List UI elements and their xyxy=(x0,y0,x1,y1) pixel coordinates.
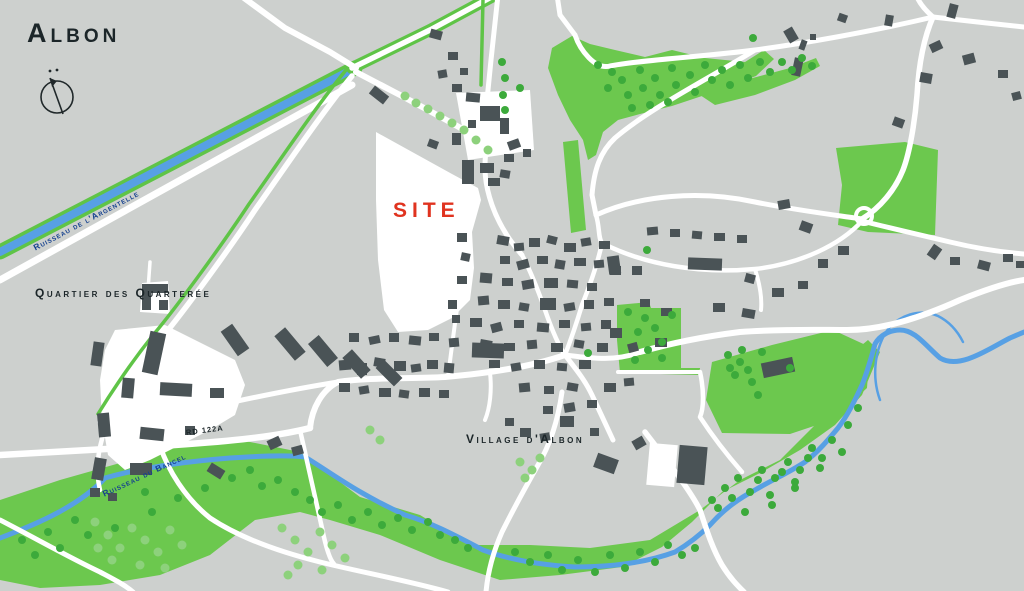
building xyxy=(514,320,524,328)
building xyxy=(339,383,350,392)
tree-icon xyxy=(291,536,300,545)
tree-icon xyxy=(756,58,764,66)
tree-icon xyxy=(754,476,762,484)
tree-icon xyxy=(644,346,652,354)
building xyxy=(452,315,460,323)
tree-icon xyxy=(796,466,804,474)
tree-icon xyxy=(646,101,654,109)
building xyxy=(521,279,534,290)
building xyxy=(566,382,578,392)
building xyxy=(604,383,616,392)
tree-icon xyxy=(141,488,149,496)
tree-icon xyxy=(658,338,666,346)
building xyxy=(543,406,553,414)
building xyxy=(573,339,584,349)
building xyxy=(581,323,592,332)
building xyxy=(670,229,680,237)
tree-icon xyxy=(624,308,632,316)
building xyxy=(610,328,622,338)
tree-icon xyxy=(521,474,530,483)
building xyxy=(551,343,563,352)
building xyxy=(139,427,164,441)
tree-icon xyxy=(718,66,726,74)
building xyxy=(520,428,531,437)
tree-icon xyxy=(499,91,507,99)
tree-icon xyxy=(634,328,642,336)
tree-icon xyxy=(201,484,209,492)
tree-icon xyxy=(651,324,659,332)
tree-icon xyxy=(394,514,402,522)
tree-icon xyxy=(526,558,534,566)
building xyxy=(540,298,556,310)
building xyxy=(590,428,599,436)
building xyxy=(379,388,391,397)
tree-icon xyxy=(584,349,592,357)
tree-icon xyxy=(408,526,416,534)
building xyxy=(410,363,421,372)
building xyxy=(419,388,430,397)
building xyxy=(427,139,439,150)
tree-icon xyxy=(574,556,582,564)
tree-icon xyxy=(651,558,659,566)
tree-icon xyxy=(791,484,799,492)
tree-icon xyxy=(44,528,52,536)
building xyxy=(529,238,540,247)
building xyxy=(537,322,550,332)
tree-icon xyxy=(591,568,599,576)
building xyxy=(130,463,152,475)
tree-icon xyxy=(424,105,433,114)
tree-icon xyxy=(714,504,722,512)
building xyxy=(632,266,642,275)
tree-icon xyxy=(274,476,282,484)
tree-icon xyxy=(178,541,187,550)
tree-icon xyxy=(498,58,506,66)
building xyxy=(457,276,467,284)
tree-icon xyxy=(636,66,644,74)
building xyxy=(358,385,369,395)
tree-icon xyxy=(91,518,100,527)
tree-icon xyxy=(166,526,175,535)
tree-icon xyxy=(754,391,762,399)
tree-icon xyxy=(161,564,170,573)
tree-icon xyxy=(511,548,519,556)
tree-icon xyxy=(749,34,757,42)
tree-icon xyxy=(641,314,649,322)
building xyxy=(498,300,510,309)
tree-icon xyxy=(424,518,432,526)
building xyxy=(624,378,635,387)
tree-icon xyxy=(536,454,545,463)
tree-icon xyxy=(816,464,824,472)
building xyxy=(544,386,554,394)
tree-icon xyxy=(341,554,350,563)
tree-icon xyxy=(108,556,117,565)
tree-icon xyxy=(136,561,145,570)
building xyxy=(741,308,755,319)
tree-icon xyxy=(778,468,786,476)
argentelle-river xyxy=(0,68,355,252)
tree-icon xyxy=(484,146,493,155)
tree-icon xyxy=(104,531,113,540)
tree-icon xyxy=(691,88,699,96)
tree-icon xyxy=(306,496,314,504)
tree-icon xyxy=(366,426,375,435)
building xyxy=(437,69,447,78)
building xyxy=(448,52,458,60)
building xyxy=(713,303,725,312)
tree-icon xyxy=(116,544,125,553)
building xyxy=(544,278,558,288)
tree-icon xyxy=(784,458,792,466)
tree-icon xyxy=(228,474,236,482)
tree-icon xyxy=(672,81,680,89)
building xyxy=(470,318,482,327)
tree-icon xyxy=(838,448,846,456)
building xyxy=(580,237,591,247)
tree-icon xyxy=(31,551,39,559)
building xyxy=(601,320,611,329)
tree-icon xyxy=(460,126,469,135)
building xyxy=(462,160,474,184)
building xyxy=(599,241,610,249)
tree-icon xyxy=(651,74,659,82)
building xyxy=(349,333,359,342)
tree-icon xyxy=(291,488,299,496)
building xyxy=(798,281,808,289)
building xyxy=(737,235,747,243)
tree-icon xyxy=(318,566,327,575)
tree-icon xyxy=(721,484,729,492)
tree-icon xyxy=(284,571,293,580)
building xyxy=(714,233,725,241)
tree-icon xyxy=(668,311,676,319)
building xyxy=(439,390,449,398)
tree-icon xyxy=(378,521,386,529)
tree-icon xyxy=(808,444,816,452)
building xyxy=(108,493,117,501)
map-canvas xyxy=(0,0,1024,591)
building xyxy=(998,70,1008,78)
tree-icon xyxy=(111,524,119,532)
building xyxy=(489,360,500,368)
tree-icon xyxy=(854,404,862,412)
tree-icon xyxy=(436,531,444,539)
tree-icon xyxy=(624,91,632,99)
building xyxy=(837,13,848,24)
tree-icon xyxy=(516,458,525,467)
building xyxy=(519,383,531,393)
building xyxy=(502,278,513,286)
tree-icon xyxy=(501,74,509,82)
tree-icon xyxy=(804,454,812,462)
tree-icon xyxy=(701,61,709,69)
tree-icon xyxy=(738,346,746,354)
building xyxy=(692,231,703,240)
tree-icon xyxy=(472,136,481,145)
building xyxy=(539,432,550,442)
building xyxy=(452,84,462,92)
tree-icon xyxy=(844,421,852,429)
tree-icon xyxy=(744,366,752,374)
tree-icon xyxy=(664,98,672,106)
building xyxy=(610,266,621,275)
tree-icon xyxy=(316,528,325,537)
building xyxy=(478,296,490,306)
tree-icon xyxy=(736,61,744,69)
tree-icon xyxy=(746,488,754,496)
building xyxy=(488,178,500,186)
tree-icon xyxy=(258,482,266,490)
building xyxy=(90,488,100,497)
building xyxy=(523,149,531,157)
tree-icon xyxy=(528,466,537,475)
building xyxy=(564,243,576,252)
building xyxy=(221,324,250,357)
tree-icon xyxy=(828,436,836,444)
building xyxy=(640,299,650,307)
building xyxy=(647,227,659,236)
tree-icon xyxy=(748,378,756,386)
tree-icon xyxy=(639,84,647,92)
building xyxy=(389,333,399,342)
building xyxy=(560,416,574,427)
tree-icon xyxy=(294,561,303,570)
tree-icon xyxy=(376,436,385,445)
building xyxy=(587,283,597,291)
tree-icon xyxy=(412,99,421,108)
building xyxy=(579,360,591,369)
tree-icon xyxy=(631,356,639,364)
tree-icon xyxy=(758,466,766,474)
building xyxy=(518,302,529,312)
building xyxy=(505,418,514,426)
building xyxy=(744,273,756,284)
tree-icon xyxy=(618,76,626,84)
tree-icon xyxy=(708,76,716,84)
tree-icon xyxy=(818,454,826,462)
building xyxy=(121,378,135,399)
tree-icon xyxy=(628,104,636,112)
tree-icon xyxy=(516,84,524,92)
building xyxy=(159,300,168,310)
tree-icon xyxy=(636,548,644,556)
building xyxy=(574,258,586,266)
building xyxy=(559,320,570,328)
building xyxy=(919,72,933,84)
building xyxy=(810,34,816,40)
building xyxy=(557,363,568,372)
building xyxy=(688,257,722,270)
tree-icon xyxy=(451,536,459,544)
building xyxy=(783,26,799,43)
building xyxy=(480,272,493,283)
building xyxy=(631,436,646,451)
building xyxy=(799,220,814,234)
tree-icon xyxy=(656,91,664,99)
tree-icon xyxy=(788,66,796,74)
tree-icon xyxy=(84,531,92,539)
building xyxy=(563,302,575,312)
tree-icon xyxy=(608,68,616,76)
building xyxy=(452,133,461,145)
building xyxy=(527,340,538,350)
tree-icon xyxy=(604,84,612,92)
building xyxy=(514,243,525,252)
tree-icon xyxy=(621,564,629,572)
building xyxy=(500,118,509,134)
tree-icon xyxy=(728,494,736,502)
tree-icon xyxy=(448,119,457,128)
tree-icon xyxy=(758,348,766,356)
building xyxy=(90,341,104,366)
tree-icon xyxy=(318,508,326,516)
tree-icon xyxy=(691,544,699,552)
map: Albon Ruisseau de l'Argentelle Quartier … xyxy=(0,0,1024,591)
tree-icon xyxy=(736,358,744,366)
building xyxy=(1011,91,1022,101)
building xyxy=(466,92,481,102)
building xyxy=(534,360,545,369)
building xyxy=(394,361,406,371)
building xyxy=(587,400,597,408)
tree-icon xyxy=(708,496,716,504)
building xyxy=(368,335,380,345)
building xyxy=(398,389,409,398)
building xyxy=(448,300,457,309)
tree-icon xyxy=(501,106,509,114)
tree-icon xyxy=(668,64,676,72)
tree-icon xyxy=(726,364,734,372)
building xyxy=(676,445,707,485)
tree-icon xyxy=(768,501,776,509)
building xyxy=(584,300,594,309)
tree-icon xyxy=(726,81,734,89)
building xyxy=(927,244,943,260)
building xyxy=(537,256,548,264)
building xyxy=(504,154,514,162)
tree-icon xyxy=(786,364,794,372)
building xyxy=(160,382,193,397)
building xyxy=(818,259,828,268)
building xyxy=(546,235,558,245)
building xyxy=(444,363,455,374)
tree-icon xyxy=(643,246,651,254)
building xyxy=(510,362,521,372)
building xyxy=(892,116,905,128)
building xyxy=(499,169,510,179)
tree-icon xyxy=(658,354,666,362)
building xyxy=(1003,254,1013,262)
building xyxy=(468,120,476,128)
tree-icon xyxy=(771,474,779,482)
building xyxy=(308,335,338,367)
building xyxy=(929,40,944,53)
building xyxy=(946,3,958,19)
tree-icon xyxy=(56,544,64,552)
tree-icon xyxy=(744,74,752,82)
tree-icon xyxy=(741,508,749,516)
building xyxy=(950,257,960,265)
tree-icon xyxy=(686,71,694,79)
tree-icon xyxy=(246,466,254,474)
tree-icon xyxy=(364,508,372,516)
building xyxy=(500,256,510,264)
building xyxy=(142,284,151,310)
building xyxy=(563,402,575,413)
building xyxy=(504,343,515,351)
tree-icon xyxy=(558,566,566,574)
tree-icon xyxy=(731,371,739,379)
building xyxy=(977,260,991,272)
building xyxy=(185,426,195,435)
tree-icon xyxy=(278,524,287,533)
tree-icon xyxy=(154,548,163,557)
building xyxy=(480,106,500,121)
building xyxy=(460,68,468,75)
tree-icon xyxy=(334,501,342,509)
building xyxy=(97,413,111,438)
building xyxy=(962,53,976,66)
tree-icon xyxy=(544,551,552,559)
building xyxy=(593,453,619,475)
building xyxy=(554,259,565,270)
tree-icon xyxy=(148,508,156,516)
tree-icon xyxy=(766,68,774,76)
tree-icon xyxy=(606,551,614,559)
tree-icon xyxy=(328,541,337,550)
building xyxy=(838,246,849,255)
tree-icon xyxy=(808,62,816,70)
building xyxy=(409,335,422,345)
tree-icon xyxy=(436,112,445,121)
tree-icon xyxy=(678,551,686,559)
tree-icon xyxy=(734,474,742,482)
tree-icon xyxy=(18,536,26,544)
tree-icon xyxy=(94,544,103,553)
tree-icon xyxy=(594,61,602,69)
tree-icon xyxy=(304,548,313,557)
tree-icon xyxy=(71,516,79,524)
tree-icon xyxy=(401,92,410,101)
tree-icon xyxy=(174,494,182,502)
building xyxy=(457,233,467,242)
building xyxy=(490,322,503,334)
tree-icon xyxy=(766,491,774,499)
building xyxy=(210,388,224,398)
tree-icon xyxy=(664,541,672,549)
tree-icon xyxy=(464,544,472,552)
tree-icon xyxy=(724,351,732,359)
building xyxy=(427,360,438,369)
tree-icon xyxy=(348,516,356,524)
building xyxy=(772,288,784,297)
building xyxy=(429,333,439,341)
tree-icon xyxy=(141,536,150,545)
building xyxy=(449,338,460,348)
compass-north-icon xyxy=(41,69,73,114)
building xyxy=(1016,261,1024,268)
building xyxy=(274,327,305,361)
tree-icon xyxy=(798,54,806,62)
building xyxy=(480,163,494,173)
tree-icon xyxy=(128,524,137,533)
tree-icon xyxy=(778,58,786,66)
building xyxy=(472,342,505,358)
building xyxy=(567,280,579,289)
building xyxy=(604,298,614,306)
building xyxy=(597,343,608,352)
